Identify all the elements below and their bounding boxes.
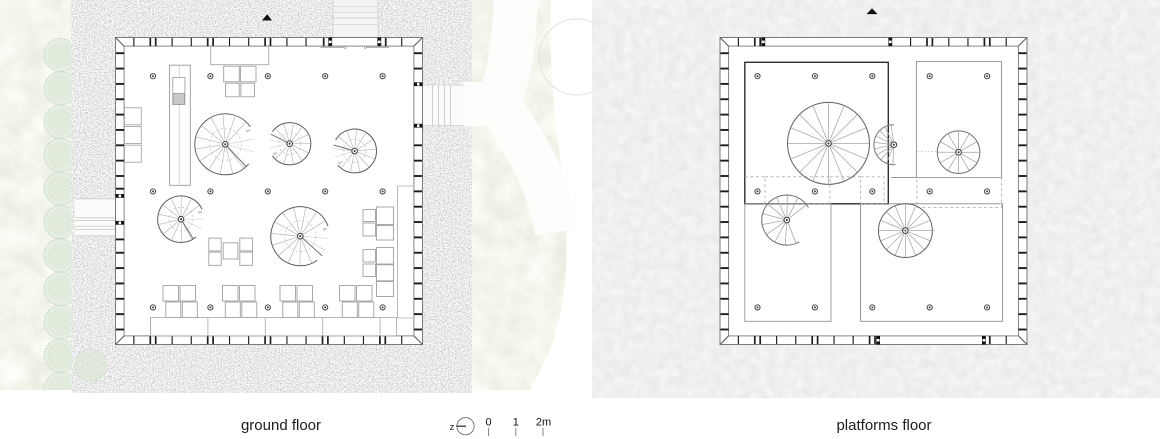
svg-text:platforms floor: platforms floor [836, 417, 931, 434]
svg-text:z: z [450, 422, 455, 433]
svg-text:2m: 2m [536, 417, 551, 429]
svg-text:UP: UP [246, 129, 250, 133]
svg-text:0: 0 [486, 417, 492, 429]
svg-text:UP: UP [198, 210, 202, 214]
svg-text:UP: UP [323, 228, 327, 232]
svg-text:ground floor: ground floor [241, 417, 321, 434]
svg-text:UP: UP [338, 161, 342, 165]
svg-text:1: 1 [513, 417, 519, 429]
svg-text:UP: UP [273, 152, 277, 156]
